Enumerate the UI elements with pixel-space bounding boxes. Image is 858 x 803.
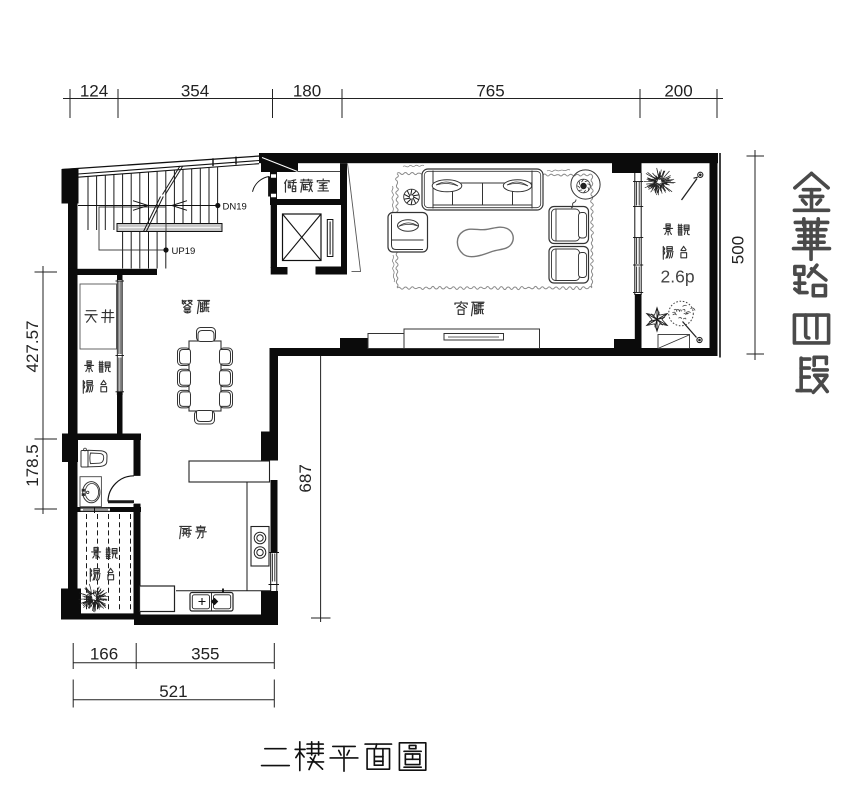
svg-text:178.5: 178.5	[23, 444, 42, 487]
svg-text:DN19: DN19	[223, 201, 247, 212]
svg-text:124: 124	[80, 81, 108, 100]
svg-text:UP19: UP19	[172, 246, 196, 257]
svg-text:521: 521	[159, 682, 187, 701]
svg-text:427.57: 427.57	[23, 321, 42, 373]
svg-text:687: 687	[296, 464, 315, 492]
svg-text:180: 180	[293, 81, 321, 100]
svg-text:500: 500	[729, 236, 748, 264]
svg-text:354: 354	[181, 81, 209, 100]
svg-text:355: 355	[191, 645, 219, 664]
svg-text:166: 166	[90, 645, 118, 664]
svg-text:2.6p: 2.6p	[661, 267, 695, 287]
svg-text:765: 765	[476, 81, 504, 100]
svg-text:200: 200	[664, 81, 692, 100]
